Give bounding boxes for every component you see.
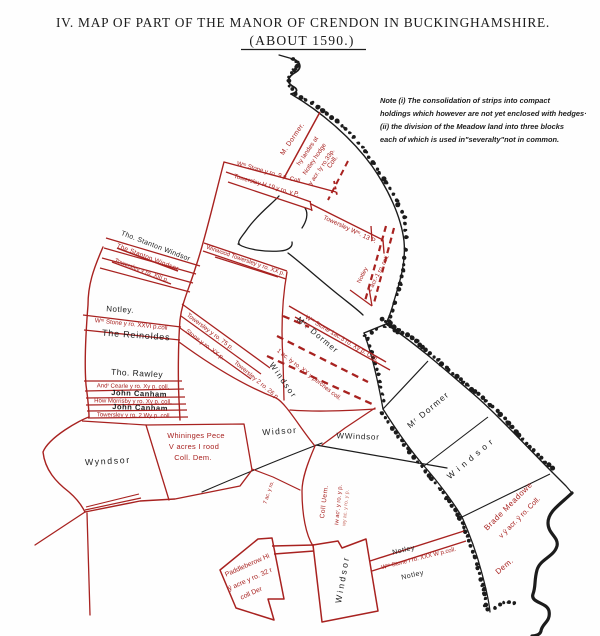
svg-text:(ii) the division of the Meado: (ii) the division of the Meadow land int… [380,122,564,131]
svg-text:Coll Uem.: Coll Uem. [319,485,330,519]
svg-text:Towersley Wᵐ. 13 P.: Towersley Wᵐ. 13 P. [322,214,377,245]
svg-text:Tho. Rawley: Tho. Rawley [111,367,164,380]
svg-text:coll Der: coll Der [239,585,264,601]
svg-text:M. Dormer.: M. Dormer. [279,122,306,157]
svg-text:John Canham: John Canham [112,402,168,413]
svg-text:(ABOUT 1590.): (ABOUT 1590.) [249,33,354,49]
svg-text:WWindsor: WWindsor [336,431,380,442]
svg-text:Winwood Towersley y ro. XX p.: Winwood Towersley y ro. XX p. [205,245,285,278]
svg-text:Notley: Notley [401,570,425,582]
svg-text:Notley: Notley [392,545,416,557]
svg-text:Coll. Dem.: Coll. Dem. [174,453,212,462]
svg-text:each of which is used in"sever: each of which is used in"severalty"not i… [380,135,559,144]
svg-text:Mʳ Dormer: Mʳ Dormer [405,389,451,430]
svg-text:7 ac. y ro.: 7 ac. y ro. [263,481,276,505]
svg-text:V acres I rood: V acres I rood [169,442,219,451]
svg-text:Notley.: Notley. [106,304,134,314]
svg-text:Whininges Pece: Whininges Pece [167,431,225,440]
svg-text:W i n d s o r: W i n d s o r [333,557,351,604]
svg-text:Towersley y ro. 2 Wy p. coll.: Towersley y ro. 2 Wy p. coll. [97,412,172,419]
svg-text:W i n d s o r: W i n d s o r [445,436,496,481]
svg-text:Widsor: Widsor [262,425,298,437]
svg-text:Notley: Notley [357,267,370,285]
svg-text:holdings which however are not: holdings which however are not yet enclo… [380,109,587,118]
svg-text:Dem.: Dem. [494,556,516,576]
svg-text:IV. MAP OF PART OF THE MANOR O: IV. MAP OF PART OF THE MANOR OF CRENDON … [56,15,550,30]
svg-text:Note (i) The consolidation of: Note (i) The consolidation of strips int… [380,96,551,105]
svg-text:Wyndsor: Wyndsor [85,455,131,467]
